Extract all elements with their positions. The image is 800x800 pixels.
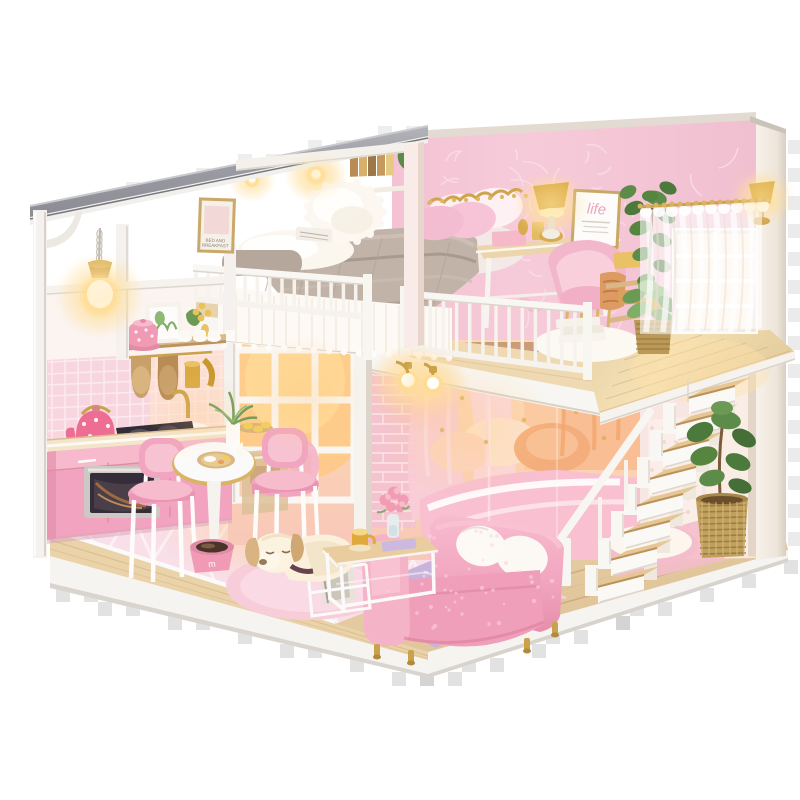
- svg-text:m: m: [208, 559, 216, 569]
- svg-text:BREAKFAST: BREAKFAST: [202, 243, 229, 249]
